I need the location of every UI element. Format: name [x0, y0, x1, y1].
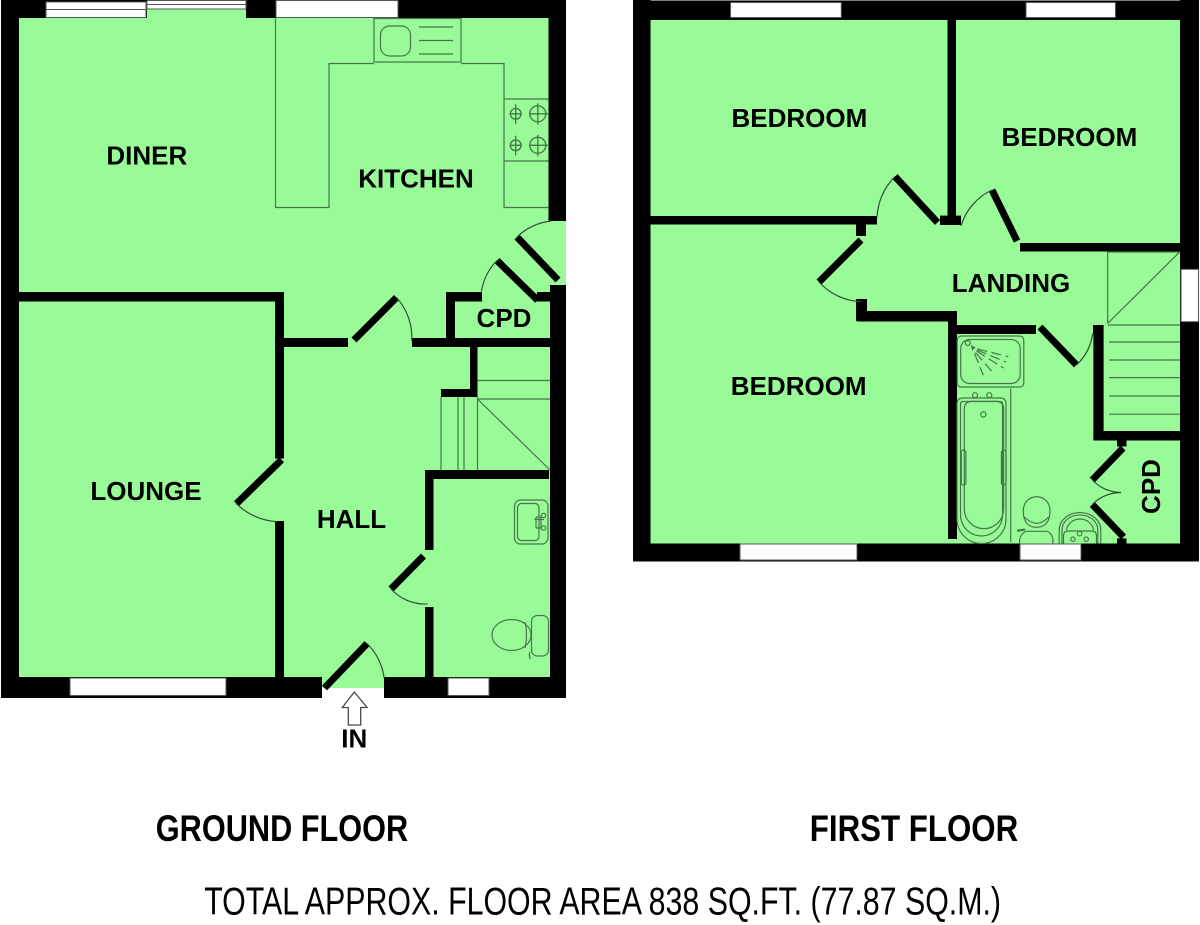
svg-text:LOUNGE: LOUNGE — [90, 476, 201, 506]
svg-text:HALL: HALL — [317, 504, 386, 534]
svg-text:BEDROOM: BEDROOM — [732, 103, 868, 133]
svg-text:FIRST FLOOR: FIRST FLOOR — [810, 808, 1018, 849]
svg-text:LANDING: LANDING — [952, 268, 1070, 298]
svg-text:BEDROOM: BEDROOM — [731, 371, 867, 401]
svg-text:DINER: DINER — [106, 140, 187, 170]
svg-text:CPD: CPD — [477, 303, 532, 333]
svg-text:BEDROOM: BEDROOM — [1002, 122, 1138, 152]
svg-text:GROUND FLOOR: GROUND FLOOR — [156, 808, 409, 850]
svg-text:IN: IN — [341, 724, 367, 754]
svg-text:CPD: CPD — [1136, 459, 1166, 514]
svg-text:KITCHEN: KITCHEN — [358, 164, 474, 194]
svg-text:TOTAL APPROX. FLOOR AREA 838 S: TOTAL APPROX. FLOOR AREA 838 SQ.FT. (77.… — [204, 881, 1001, 923]
